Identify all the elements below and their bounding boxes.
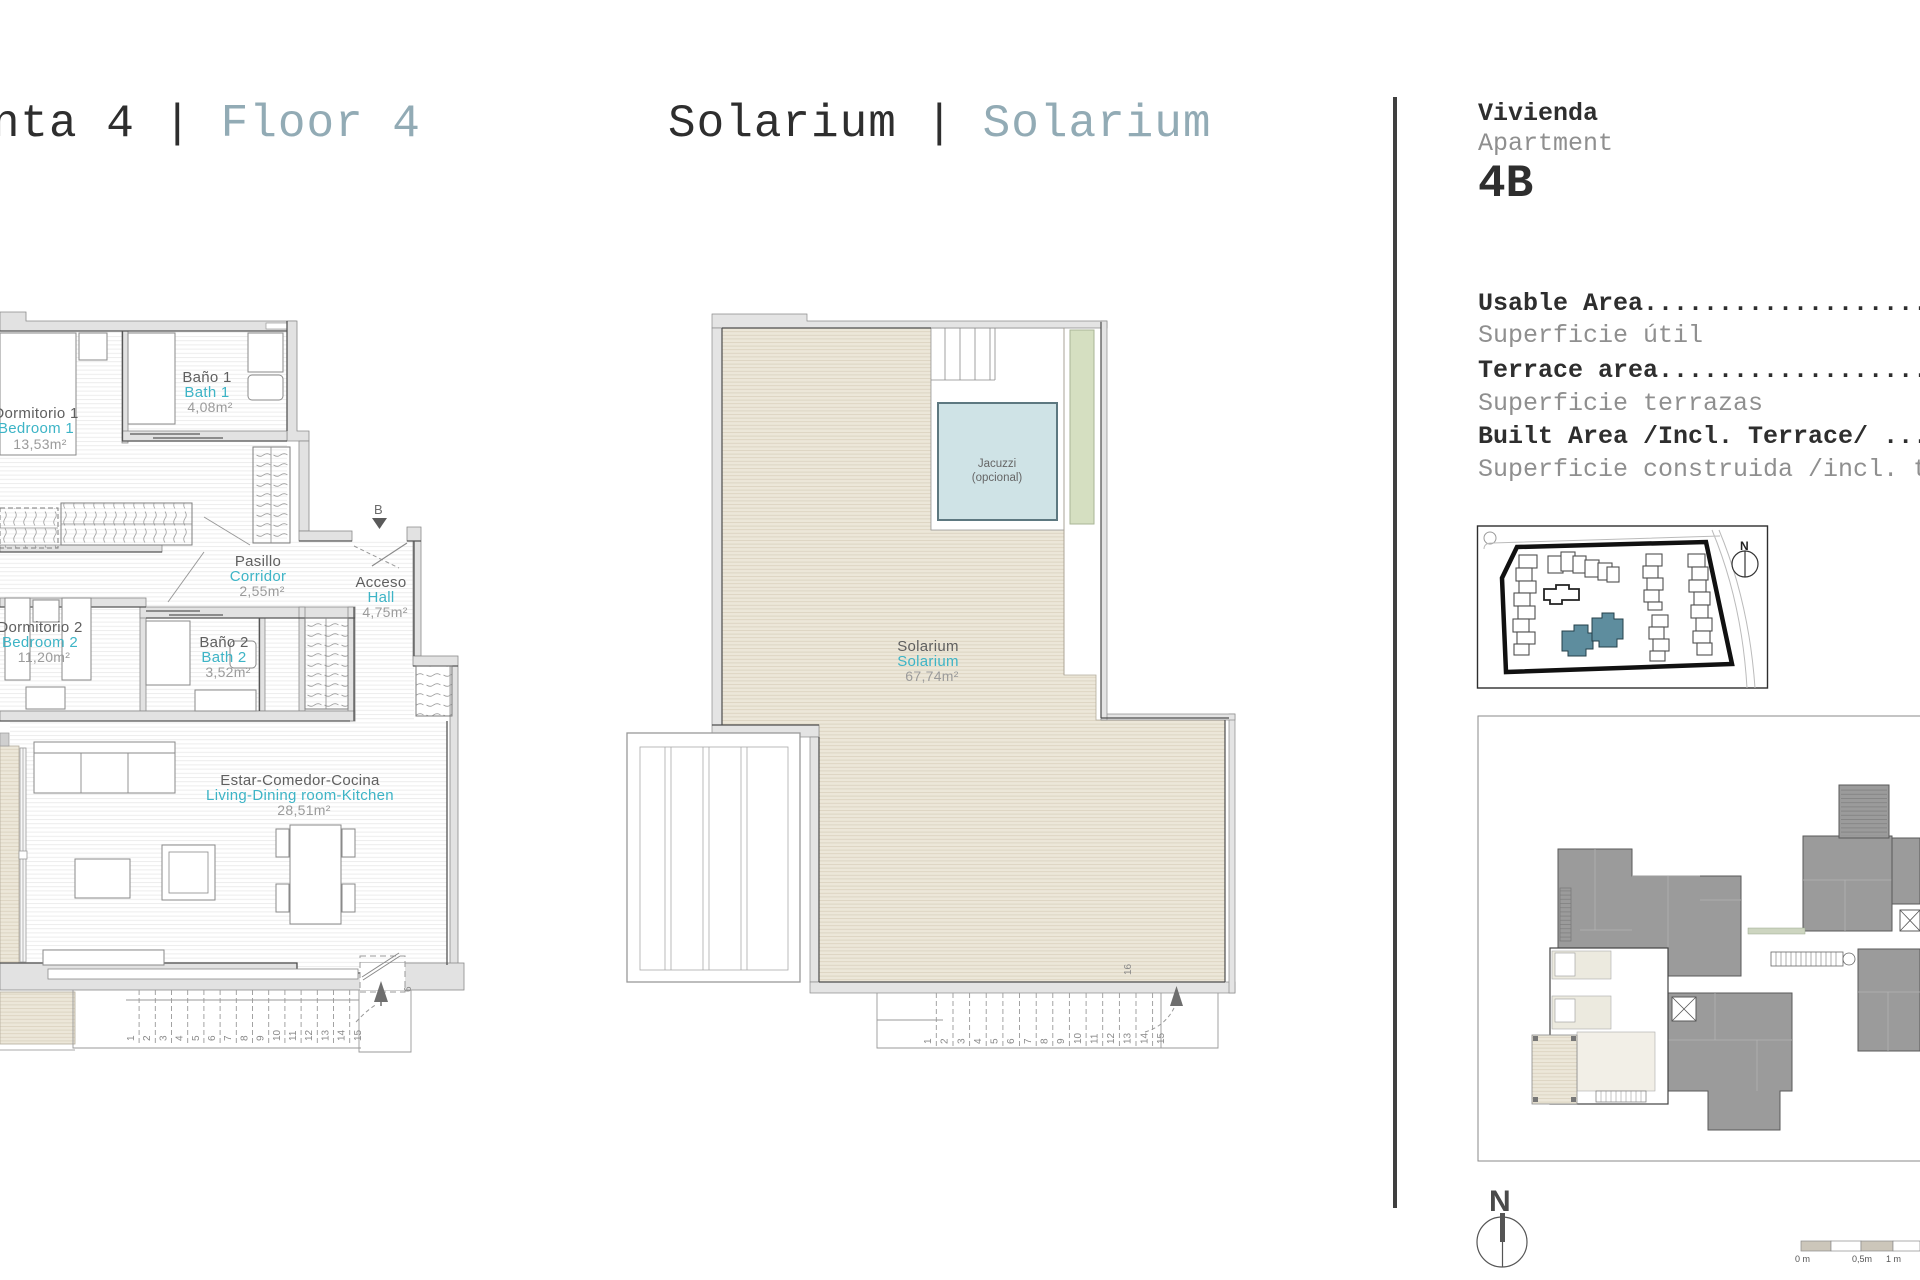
svg-text:7: 7	[1023, 1038, 1034, 1044]
svg-text:13: 13	[1123, 1032, 1134, 1044]
svg-text:14: 14	[337, 1029, 348, 1041]
svg-text:Vivienda: Vivienda	[1478, 99, 1598, 128]
svg-text:4,08m²: 4,08m²	[187, 399, 232, 415]
svg-text:1: 1	[126, 1035, 137, 1041]
svg-text:8: 8	[239, 1035, 250, 1041]
svg-text:11,20m²: 11,20m²	[18, 649, 70, 665]
svg-text:13,53m²: 13,53m²	[13, 436, 66, 452]
svg-text:6: 6	[403, 986, 414, 992]
svg-text:Superficie construida /incl. t: Superficie construida /incl. terrazas	[1478, 455, 1920, 484]
svg-text:9: 9	[1056, 1038, 1067, 1044]
svg-text:15: 15	[1156, 1032, 1167, 1044]
svg-text:2: 2	[142, 1035, 153, 1041]
svg-text:N: N	[1740, 539, 1749, 553]
svg-text:7: 7	[223, 1035, 234, 1041]
svg-text:67,74m²: 67,74m²	[905, 668, 958, 684]
svg-text:1 m: 1 m	[1886, 1254, 1901, 1264]
svg-text:5: 5	[191, 1035, 202, 1041]
svg-text:4: 4	[973, 1038, 984, 1044]
svg-text:(opcional): (opcional)	[972, 472, 1023, 484]
svg-text:Usable Area...................: Usable Area...........................	[1478, 289, 1920, 318]
svg-text:5: 5	[990, 1038, 1001, 1044]
svg-text:Superficie terrazas: Superficie terrazas	[1478, 389, 1763, 418]
svg-text:14: 14	[1139, 1032, 1150, 1044]
svg-text:15: 15	[353, 1029, 364, 1041]
svg-text:10: 10	[1073, 1032, 1084, 1044]
svg-text:B: B	[374, 502, 383, 517]
svg-text:4: 4	[175, 1035, 186, 1041]
svg-text:28,51m²: 28,51m²	[277, 802, 330, 818]
svg-text:12: 12	[304, 1029, 315, 1041]
svg-text:2: 2	[940, 1038, 951, 1044]
svg-text:3,52m²: 3,52m²	[205, 664, 250, 680]
svg-text:16: 16	[1123, 963, 1134, 975]
svg-text:6: 6	[207, 1035, 218, 1041]
svg-text:Bedroom 1: Bedroom 1	[0, 420, 74, 437]
svg-text:9: 9	[256, 1035, 267, 1041]
svg-text:Jacuzzi: Jacuzzi	[978, 458, 1016, 470]
svg-text:12: 12	[1106, 1032, 1117, 1044]
svg-text:11: 11	[1089, 1033, 1100, 1044]
svg-text:11: 11	[288, 1030, 299, 1041]
svg-text:3: 3	[956, 1038, 967, 1044]
svg-text:0 m: 0 m	[1795, 1254, 1810, 1264]
svg-text:Terrace area..................: Terrace area..........................	[1478, 356, 1920, 385]
svg-text:Apartment: Apartment	[1478, 129, 1613, 158]
svg-text:1: 1	[923, 1038, 934, 1044]
svg-text:13: 13	[320, 1029, 331, 1041]
svg-text:Solarium | Solarium: Solarium | Solarium	[668, 98, 1212, 150]
svg-text:6: 6	[1006, 1038, 1017, 1044]
svg-text:4,75m²: 4,75m²	[362, 604, 407, 620]
svg-text:10: 10	[272, 1029, 283, 1041]
svg-text:N: N	[1489, 1185, 1511, 1218]
svg-text:Built Area /Incl. Terrace/ ...: Built Area /Incl. Terrace/ ...........	[1478, 422, 1920, 451]
svg-text:4B: 4B	[1478, 158, 1533, 210]
svg-text:8: 8	[1040, 1038, 1051, 1044]
svg-text:0,5m: 0,5m	[1852, 1254, 1872, 1264]
svg-text:Superficie útil: Superficie útil	[1478, 321, 1703, 350]
svg-text:2,55m²: 2,55m²	[239, 583, 284, 599]
svg-text:3: 3	[158, 1035, 169, 1041]
svg-text:Planta 4 | Floor 4: Planta 4 | Floor 4	[0, 98, 421, 150]
